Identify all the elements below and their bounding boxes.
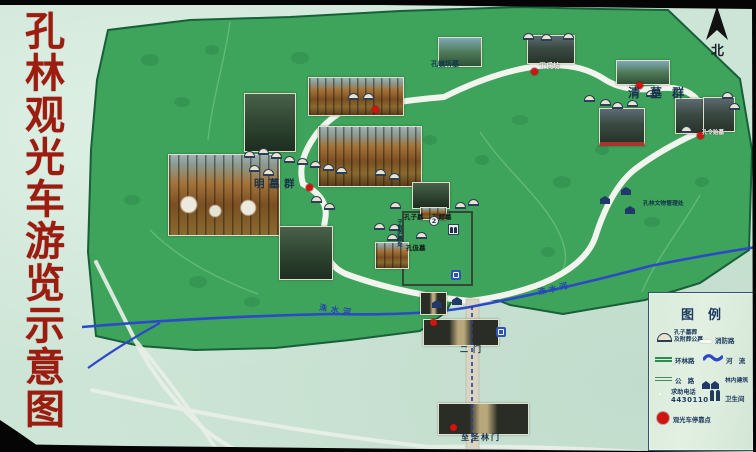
avenue-tick [471, 418, 474, 422]
toilet-icon [448, 224, 459, 235]
kongzi-tomb-label: 孔子墓 [404, 211, 424, 221]
fire-road-icon [699, 340, 712, 343]
route-marker-2: 2 [429, 216, 439, 226]
legend-building-label: 林内建筑 [725, 375, 748, 384]
map-sign-photo: 孔林观光车游览示意图 北 孔毓圻墓 于氏坊 清墓群 孔令贻墓 明墓群 孔林文物管… [0, 0, 756, 452]
site-photo [616, 60, 670, 85]
tomb-mound-icon [416, 232, 427, 239]
tomb-mound-icon [348, 93, 359, 100]
tomb-mound-icon [310, 161, 321, 168]
avenue-tick [471, 390, 474, 394]
site-photo [318, 126, 422, 187]
tomb-mound-icon [363, 93, 374, 100]
avenue-tick [471, 362, 474, 366]
avenue-tick [471, 376, 474, 380]
tomb-mound-icon [523, 33, 534, 40]
bus-stop-dot [430, 319, 437, 326]
kong-lingyi-tomb-label: 孔令贻墓 [702, 128, 724, 136]
tomb-mound-icon [336, 167, 347, 174]
site-photo [168, 154, 280, 236]
tomb-mound-icon [323, 164, 334, 171]
legend-phone-label: 求助电话 4430110 [671, 389, 709, 404]
yu-shi-archway-label: 于氏坊 [539, 61, 560, 71]
qing-tombs-label: 清墓群 [628, 84, 694, 101]
map-title: 孔林观光车游览示意图 [12, 10, 70, 448]
avenue-tick [471, 320, 474, 324]
tomb-mound-icon [600, 99, 611, 106]
legend-title: 图例 [649, 304, 753, 323]
legend-fire-road-label: 消防路 [715, 335, 735, 345]
bus-stop-dot [306, 184, 313, 191]
legend-highway-label: 公 路 [675, 375, 696, 385]
tomb-mound-icon [729, 103, 740, 110]
tomb-mound-icon [455, 202, 466, 209]
avenue-tick [471, 397, 474, 401]
tomb-mound-icon [722, 92, 733, 99]
legend-bus-stop-label: 观光车停靠点 [673, 415, 711, 424]
tomb-mound-icon [375, 169, 386, 176]
bus-stop-dot [372, 106, 379, 113]
avenue-tick [471, 313, 474, 317]
tomb-mound-icon [258, 148, 269, 155]
tomb-mound-icon [324, 203, 335, 210]
tomb-mound-icon [374, 223, 385, 230]
site-photo [375, 242, 409, 269]
highway-icon [655, 377, 672, 383]
site-photo [599, 108, 645, 146]
legend-river-label: 河 流 [726, 355, 747, 365]
tomb-mound-icon [563, 33, 574, 40]
second-gate-label: 二门 [460, 344, 486, 355]
tomb-mound-icon [297, 158, 308, 165]
compass-north: 北 [698, 4, 742, 62]
ring-road-icon [655, 357, 672, 363]
legend-box: 图例 孔子墓葬 及附葬公墓 消防路 环林路 河 流 公 路 林内建筑 求助电话 … [648, 292, 754, 451]
avenue-tick [471, 369, 474, 373]
kongji-tomb-label: 孔伋墓 [406, 242, 426, 252]
avenue-tick [471, 425, 474, 429]
tomb-mound-icon [249, 165, 260, 172]
avenue-tick [471, 327, 474, 331]
tomb-mound-icon [390, 202, 401, 209]
north-label: 北 [711, 40, 724, 59]
outer-road-bottom-3 [137, 342, 218, 452]
tomb-mound-icon [311, 196, 322, 203]
toilet-icon [708, 388, 722, 401]
tomb-mound-icon [271, 152, 282, 159]
avenue-tick [471, 306, 474, 310]
relics-office-label: 孔林文物管理处 [643, 198, 684, 207]
forest-gate-label: 至圣林门 [461, 432, 501, 443]
avenue-tick [471, 355, 474, 359]
river-icon [703, 352, 723, 364]
site-photo [412, 182, 450, 209]
bus-stop-dot [450, 424, 457, 431]
bus-stop-icon [657, 412, 669, 424]
phone-icon [496, 327, 506, 337]
legend-toilet-label: 卫生间 [725, 393, 745, 403]
tomb-mound-icon [389, 173, 400, 180]
tomb-mound-icon [681, 126, 692, 133]
site-photo [703, 97, 735, 132]
avenue-tick [471, 334, 474, 338]
ming-tombs-label: 明墓群 [254, 176, 299, 191]
tomb-mound-icon [263, 169, 274, 176]
avenue-tick [471, 404, 474, 408]
phone-icon [451, 270, 461, 280]
outer-road-bottom-2 [430, 447, 640, 452]
avenue-tick [471, 411, 474, 415]
site-photo [279, 226, 333, 280]
tomb-mound-icon [541, 34, 552, 41]
site-photo [244, 93, 296, 152]
tomb-mound-icon [284, 156, 295, 163]
tomb-mound-icon [627, 100, 638, 107]
avenue-tick [471, 383, 474, 387]
legend-ring-road-label: 环林路 [675, 355, 695, 365]
kong-yuqi-tomb-label: 孔毓圻墓 [431, 59, 459, 69]
zigong-hut-label: 子贡庐墓处 [395, 219, 403, 247]
building-icon [702, 374, 722, 383]
bus-stop-dot [531, 68, 538, 75]
tomb-mound-icon [468, 199, 479, 206]
tomb-mound-icon [244, 151, 255, 158]
tomb-mound-icon [657, 333, 672, 342]
tomb-mound-icon [612, 102, 623, 109]
outer-road-bottom-1 [92, 390, 430, 447]
tomb-mound-icon [584, 95, 595, 102]
